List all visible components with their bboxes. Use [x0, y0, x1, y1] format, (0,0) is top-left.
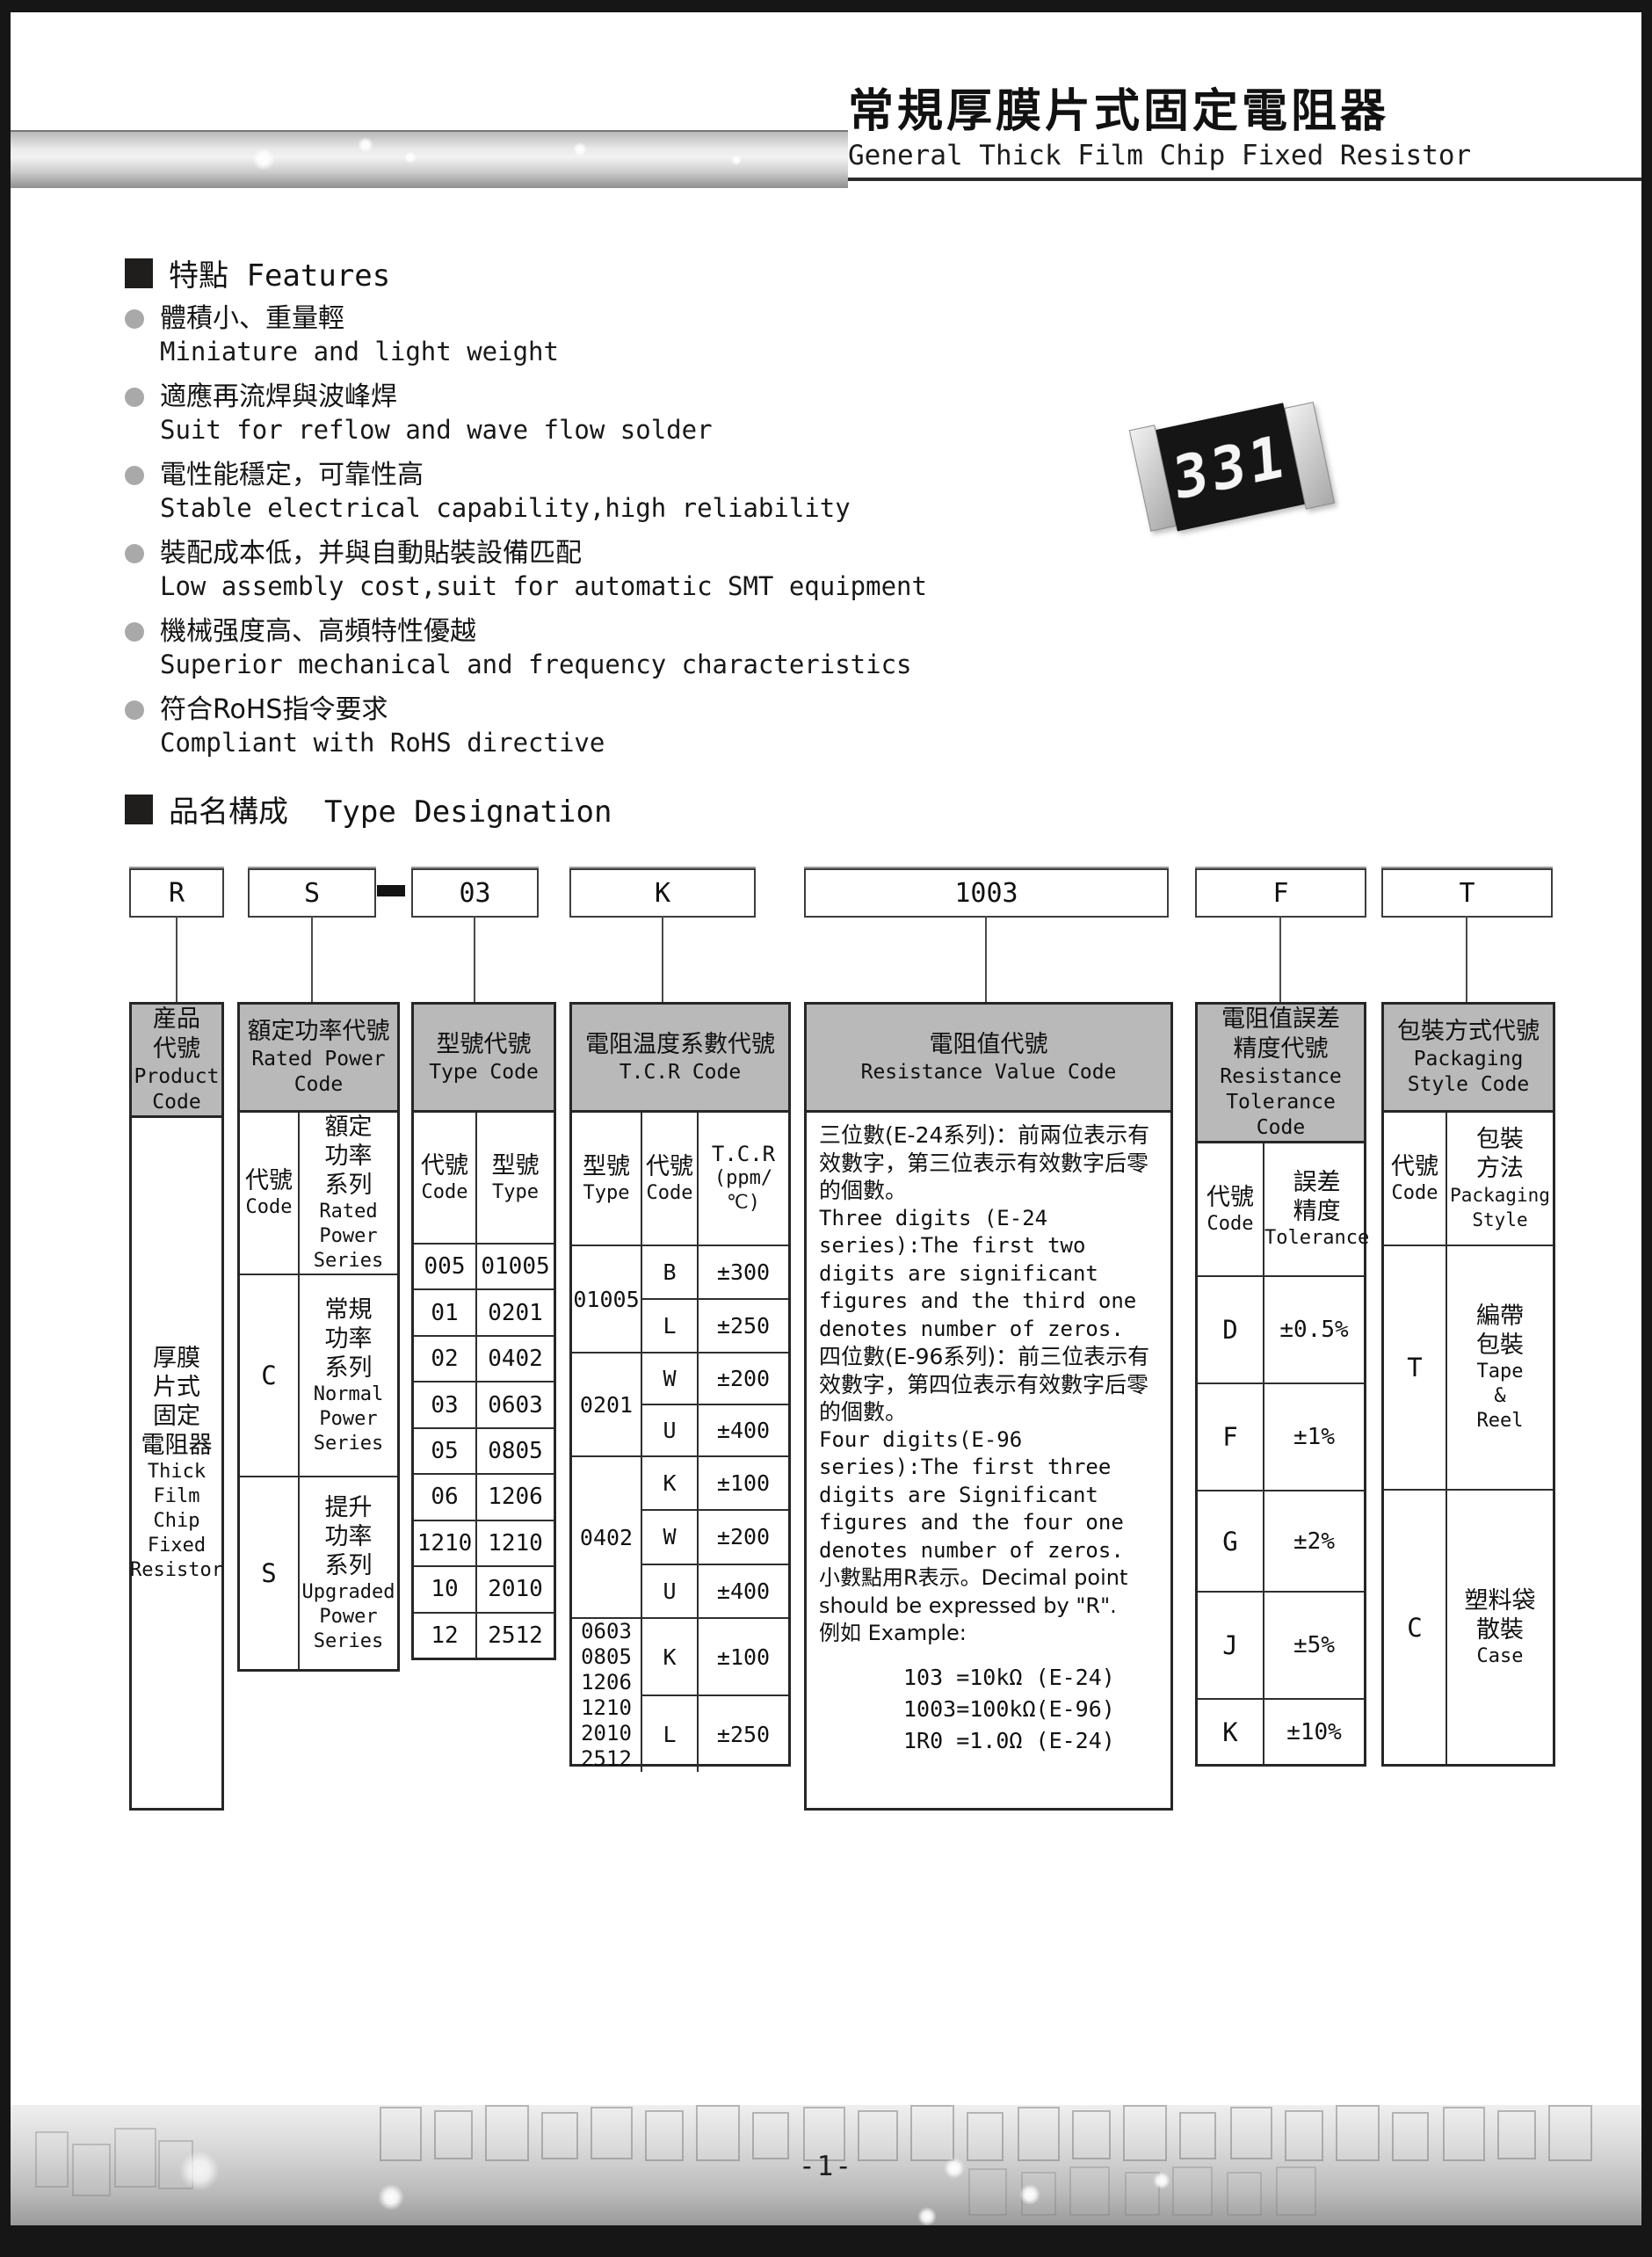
column-header: 産品 代號 Product Code: [132, 1005, 221, 1118]
section-marker-icon: [125, 258, 153, 288]
page-title-cn: 常規厚膜片式固定電阻器: [848, 84, 1641, 139]
code-box-product: R: [129, 868, 224, 918]
table-column-rated-power: 額定功率代號 Rated Power Code 代號 Code 額定 功率 系列…: [237, 1002, 400, 1672]
sub-header-type: 型號 Type: [477, 1113, 554, 1243]
sub-header-code: 代號 Code: [642, 1113, 699, 1245]
feature-cn: 體積小、重量輕: [160, 302, 344, 336]
rated-power-series: 提升 功率 系列 Upgraded Power Series: [300, 1477, 397, 1669]
code-box-rated-power: S: [248, 868, 376, 918]
table-row: B ±300: [642, 1246, 788, 1300]
table-row: 06 1206: [414, 1475, 554, 1520]
column-header: 額定功率代號 Rated Power Code: [240, 1005, 397, 1113]
datasheet-page: 常規厚膜片式固定電阻器 General Thick Film Chip Fixe…: [0, 0, 1652, 2257]
features-heading-en: Features: [246, 258, 390, 294]
feature-en: Compliant with RoHS directive: [160, 727, 1091, 759]
table-row: F ±1%: [1198, 1384, 1364, 1491]
list-item: 裝配成本低，并與自動貼裝設備匹配 Low assembly cost,suit …: [125, 537, 1091, 603]
connector-line: [985, 916, 987, 1002]
packaging-style: 塑料袋 散裝 Case: [1447, 1491, 1553, 1764]
feature-cn: 機械强度高、高頻特性優越: [160, 615, 476, 649]
table-row: 005 01005: [414, 1245, 554, 1290]
list-item: 適應再流焊與波峰焊 Suit for reflow and wave flow …: [125, 381, 1091, 446]
resistor-marking: 331: [1171, 421, 1289, 513]
type-designation-heading: 品名構成 Type Designation: [125, 787, 612, 831]
code-box-resistance: 1003: [804, 868, 1169, 918]
sub-header-style: 包裝 方法 Packaging Style: [1447, 1113, 1553, 1245]
feature-en: Suit for reflow and wave flow solder: [160, 414, 1091, 446]
table-row: C 塑料袋 散裝 Case: [1384, 1491, 1553, 1764]
sparkle-icon: [917, 2207, 937, 2225]
rated-power-series: 常規 功率 系列 Normal Power Series: [300, 1275, 397, 1476]
connector-line: [176, 916, 178, 1002]
feature-cn: 符合RoHS指令要求: [160, 693, 388, 727]
table-row: D ±0.5%: [1198, 1277, 1364, 1384]
table-column-tcr: 電阻温度系數代號 T.C.R Code 型號 Type 代號 Code T.C.…: [569, 1002, 791, 1767]
feature-en: Superior mechanical and frequency charac…: [160, 649, 1091, 681]
column-header: 電阻值代號 Resistance Value Code: [807, 1005, 1170, 1113]
sparkle-icon: [573, 142, 587, 156]
table-row: L ±250: [642, 1696, 788, 1772]
bullet-icon: [125, 388, 144, 407]
section-marker-icon: [125, 795, 153, 824]
page-number: -1-: [11, 2151, 1641, 2182]
table-row: K ±100: [642, 1457, 788, 1511]
sub-header-row: 代號 Code 包裝 方法 Packaging Style: [1384, 1113, 1553, 1246]
table-row: 12 2512: [414, 1614, 554, 1658]
table-column-tolerance: 電阻值誤差 精度代號 Resistance Tolerance Code 代號 …: [1195, 1002, 1366, 1767]
table-column-packaging: 包裝方式代號 Packaging Style Code 代號 Code 包裝 方…: [1381, 1002, 1555, 1767]
tcr-group: 0402 K ±100 W ±200 U ±400: [572, 1457, 788, 1619]
table-row: 05 0805: [414, 1429, 554, 1475]
list-item: 機械强度高、高頻特性優越 Superior mechanical and fre…: [125, 615, 1091, 681]
sub-header-row: 代號 Code 誤差 精度 Tolerance: [1198, 1143, 1364, 1277]
product-body: 厚膜 片式 固定 電阻器 Thick Film Chip Fixed Resis…: [132, 1118, 221, 1808]
sub-header-row: 代號 Code 額定 功率 系列 Rated Power Series: [240, 1113, 397, 1275]
tcr-type-list: 0603 0805 1206 1210 2010 2512: [572, 1619, 642, 1772]
designation-heading-cn: 品名構成: [169, 795, 288, 830]
designation-heading-en: Type Designation: [324, 795, 612, 830]
code-box-tcr: K: [569, 868, 756, 918]
header-gradient-band: [11, 130, 848, 188]
features-heading-cn: 特點: [169, 258, 228, 294]
sub-header-tolerance: 誤差 精度 Tolerance: [1264, 1143, 1369, 1275]
connector-line: [1279, 916, 1281, 1002]
page-border-left: [0, 0, 11, 2257]
sparkle-icon: [358, 137, 373, 153]
bullet-icon: [125, 700, 144, 720]
chip-resistor-photo: 331: [1130, 396, 1334, 536]
footer-gradient-band: -1-: [11, 2105, 1641, 2225]
sub-header-series: 額定 功率 系列 Rated Power Series: [300, 1113, 397, 1274]
table-row: S 提升 功率 系列 Upgraded Power Series: [240, 1477, 397, 1669]
table-row: T 編帶 包裝 Tape & Reel: [1384, 1246, 1553, 1491]
bullet-icon: [125, 309, 144, 329]
sub-header-row: 型號 Type 代號 Code T.C.R (ppm/℃): [572, 1113, 788, 1246]
table-column-product: 産品 代號 Product Code 厚膜 片式 固定 電阻器 Thick Fi…: [129, 1002, 224, 1811]
table-row: U ±400: [642, 1565, 788, 1617]
page-title-en: General Thick Film Chip Fixed Resistor: [848, 139, 1641, 172]
page-border-bottom: [0, 2225, 1652, 2257]
resistance-value-text: 三位數(E-24系列)：前兩位表示有效數字，第三位表示有效數字后零的個數。 Th…: [807, 1113, 1170, 1757]
document-header: 常規厚膜片式固定電阻器 General Thick Film Chip Fixe…: [848, 84, 1641, 181]
resistor-body: 331: [1156, 403, 1304, 531]
table-row: 03 0603: [414, 1383, 554, 1428]
table-column-type-code: 型號代號 Type Code 代號 Code 型號 Type 005 01005…: [411, 1002, 556, 1660]
connector-line: [474, 916, 475, 1002]
sparkle-icon: [1019, 2184, 1040, 2205]
rated-power-code: S: [240, 1477, 300, 1669]
sub-header-code: 代號 Code: [414, 1113, 477, 1243]
sub-header-type: 型號 Type: [572, 1113, 642, 1245]
table-row: 10 2010: [414, 1567, 554, 1613]
feature-en: Low assembly cost,suit for automatic SMT…: [160, 570, 1091, 603]
feature-en: Stable electrical capability,high reliab…: [160, 492, 1091, 525]
connector-line: [662, 916, 663, 1002]
list-item: 電性能穩定，可靠性高 Stable electrical capability,…: [125, 459, 1091, 525]
table-row: J ±5%: [1198, 1593, 1364, 1700]
tcr-group: 0603 0805 1206 1210 2010 2512 K ±100 L ±…: [572, 1619, 788, 1772]
table-row: K ±100: [642, 1619, 788, 1696]
table-row: 1210 1210: [414, 1521, 554, 1567]
table-row: G ±2%: [1198, 1491, 1364, 1593]
features-section-heading: 特點 Features: [125, 251, 390, 294]
packaging-style: 編帶 包裝 Tape & Reel: [1447, 1246, 1553, 1489]
table-row: L ±250: [642, 1300, 788, 1352]
page-border-right: [1641, 0, 1652, 2257]
column-header: 電阻温度系數代號 T.C.R Code: [572, 1005, 788, 1113]
code-box-packaging: T: [1381, 868, 1553, 918]
table-row: U ±400: [642, 1405, 788, 1455]
table-row: W ±200: [642, 1511, 788, 1564]
code-box-tolerance: F: [1195, 868, 1366, 918]
sub-header-tcr: T.C.R (ppm/℃): [699, 1113, 788, 1245]
list-item: 符合RoHS指令要求 Compliant with RoHS directive: [125, 693, 1091, 759]
sparkle-icon: [731, 155, 742, 165]
column-header: 包裝方式代號 Packaging Style Code: [1384, 1005, 1553, 1113]
features-list: 體積小、重量輕 Miniature and light weight 適應再流焊…: [125, 302, 1091, 772]
feature-cn: 電性能穩定，可靠性高: [160, 459, 424, 492]
rated-power-code: C: [240, 1275, 300, 1476]
tcr-group: 0201 W ±200 U ±400: [572, 1353, 788, 1457]
bullet-icon: [125, 544, 144, 563]
table-row: W ±200: [642, 1353, 788, 1405]
sub-header-code: 代號 Code: [1384, 1113, 1447, 1245]
feature-cn: 適應再流焊與波峰焊: [160, 381, 397, 414]
sub-header-code: 代號 Code: [240, 1113, 300, 1274]
column-header: 電阻值誤差 精度代號 Resistance Tolerance Code: [1198, 1005, 1364, 1143]
code-box-type: 03: [411, 868, 539, 918]
sparkle-icon: [378, 2184, 404, 2210]
sparkle-icon: [252, 148, 275, 171]
connector-line: [311, 916, 313, 1002]
page-border-top: [0, 0, 1652, 12]
dash-separator: [377, 885, 405, 896]
feature-cn: 裝配成本低，并與自動貼裝設備匹配: [160, 537, 582, 570]
sub-header-code: 代號 Code: [1198, 1143, 1264, 1275]
feature-en: Miniature and light weight: [160, 336, 1091, 368]
tcr-group: 01005 B ±300 L ±250: [572, 1246, 788, 1353]
table-row: C 常規 功率 系列 Normal Power Series: [240, 1275, 397, 1477]
connector-line: [1466, 916, 1467, 1002]
table-row: 02 0402: [414, 1337, 554, 1383]
list-item: 體積小、重量輕 Miniature and light weight: [125, 302, 1091, 368]
sparkle-icon: [404, 151, 417, 163]
column-header: 型號代號 Type Code: [414, 1005, 554, 1113]
table-row: 01 0201: [414, 1290, 554, 1336]
sub-header-row: 代號 Code 型號 Type: [414, 1113, 554, 1245]
resistance-value-examples: 103 =10kΩ (E-24) 1003=100kΩ(E-96) 1R0 =1…: [903, 1662, 1160, 1757]
table-column-resistance-value: 電阻值代號 Resistance Value Code 三位數(E-24系列)：…: [804, 1002, 1173, 1811]
bullet-icon: [125, 622, 144, 642]
bullet-icon: [125, 466, 144, 485]
table-row: K ±10%: [1198, 1700, 1364, 1764]
